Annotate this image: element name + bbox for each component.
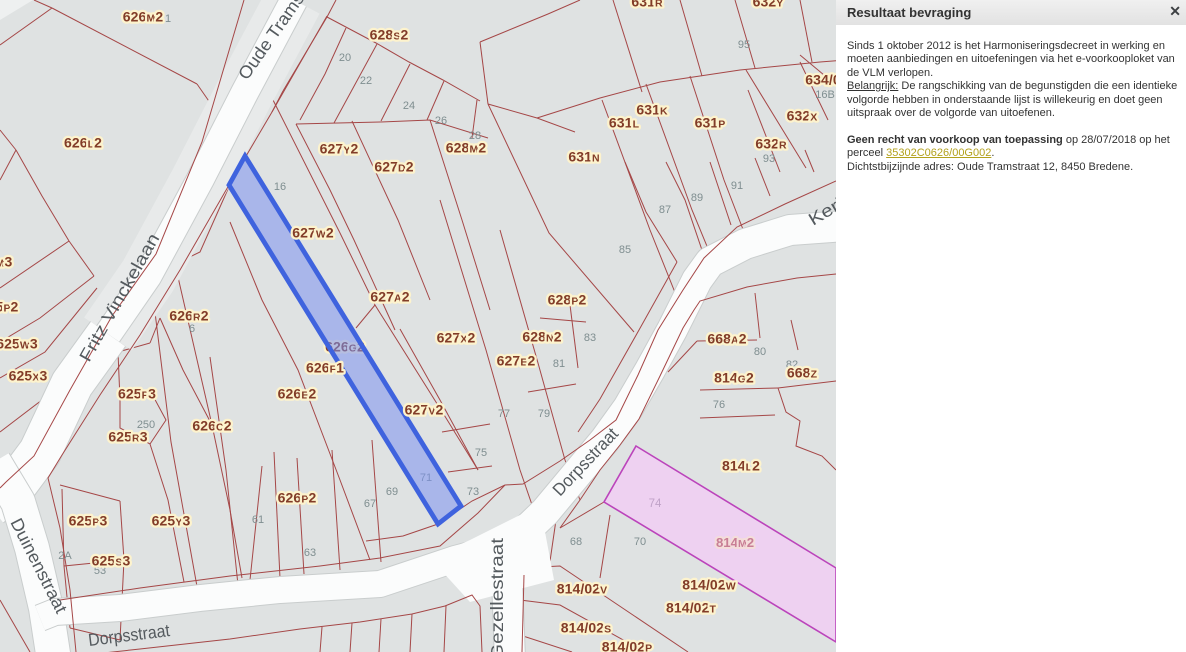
svg-text:81: 81 <box>553 358 565 370</box>
svg-text:80: 80 <box>754 346 766 358</box>
svg-text:79: 79 <box>538 408 550 420</box>
svg-text:70: 70 <box>634 536 646 548</box>
svg-text:814L2: 814L2 <box>722 458 760 474</box>
svg-text:628P2: 628P2 <box>548 292 587 308</box>
svg-text:89: 89 <box>691 192 703 204</box>
svg-text:16: 16 <box>274 181 286 193</box>
svg-text:73: 73 <box>467 486 479 498</box>
svg-text:16B: 16B <box>815 89 835 101</box>
svg-text:814M2: 814M2 <box>716 535 754 550</box>
svg-text:625R3: 625R3 <box>108 429 147 445</box>
svg-text:75: 75 <box>475 447 487 459</box>
svg-text:61: 61 <box>252 514 264 526</box>
svg-text:22: 22 <box>360 75 372 87</box>
svg-text:76: 76 <box>713 399 725 411</box>
svg-text:625Y3: 625Y3 <box>152 513 191 529</box>
svg-text:63: 63 <box>304 547 316 559</box>
svg-text:68: 68 <box>570 536 582 548</box>
svg-text:628N2: 628N2 <box>522 329 561 345</box>
svg-text:625W3: 625W3 <box>0 336 38 352</box>
svg-text:627A2: 627A2 <box>370 289 409 305</box>
svg-text:625S3: 625S3 <box>92 553 131 569</box>
svg-text:95: 95 <box>738 39 750 51</box>
svg-text:69: 69 <box>386 486 398 498</box>
svg-text:627V2: 627V2 <box>405 402 444 418</box>
svg-text:627X2: 627X2 <box>437 330 476 346</box>
svg-text:626M2: 626M2 <box>123 9 164 25</box>
svg-text:1: 1 <box>165 13 171 25</box>
svg-text:625X3: 625X3 <box>9 368 48 384</box>
svg-text:668A2: 668A2 <box>707 331 746 347</box>
svg-text:814/02T: 814/02T <box>666 600 716 616</box>
svg-text:814/02V: 814/02V <box>557 581 608 597</box>
svg-text:814/02P: 814/02P <box>602 639 653 652</box>
svg-text:626E2: 626E2 <box>278 386 317 402</box>
svg-text:634/0: 634/0 <box>805 72 836 88</box>
svg-text:67: 67 <box>364 498 376 510</box>
svg-text:24: 24 <box>403 100 415 112</box>
svg-text:627E2: 627E2 <box>497 353 536 369</box>
svg-text:74: 74 <box>649 498 662 510</box>
svg-text:628M2: 628M2 <box>446 140 487 156</box>
svg-text:627Y2: 627Y2 <box>320 141 359 157</box>
svg-text:814/02S: 814/02S <box>561 620 612 636</box>
svg-text:Gezellestraat: Gezellestraat <box>487 538 507 652</box>
svg-text:625F3: 625F3 <box>118 386 156 402</box>
svg-text:83: 83 <box>584 332 596 344</box>
svg-text:77: 77 <box>498 408 510 420</box>
svg-text:26: 26 <box>435 115 447 127</box>
svg-text:626P2: 626P2 <box>278 490 317 506</box>
svg-text:628S2: 628S2 <box>370 27 409 43</box>
svg-text:627W2: 627W2 <box>292 225 334 241</box>
svg-text:91: 91 <box>731 180 743 192</box>
svg-text:6: 6 <box>189 323 195 335</box>
svg-text:631R: 631R <box>631 0 663 10</box>
svg-text:626R2: 626R2 <box>169 308 208 324</box>
svg-text:626C2: 626C2 <box>192 418 231 434</box>
svg-text:626L2: 626L2 <box>64 135 102 151</box>
svg-text:632Y: 632Y <box>753 0 784 10</box>
svg-text:626F1: 626F1 <box>306 360 344 376</box>
svg-text:20: 20 <box>339 52 351 64</box>
svg-text:87: 87 <box>659 204 671 216</box>
svg-text:625P3: 625P3 <box>69 513 108 529</box>
svg-text:93: 93 <box>763 153 775 165</box>
svg-text:2A: 2A <box>58 550 72 562</box>
svg-text:85: 85 <box>619 244 631 256</box>
svg-text:814G2: 814G2 <box>714 370 754 386</box>
svg-text:627D2: 627D2 <box>374 159 413 175</box>
